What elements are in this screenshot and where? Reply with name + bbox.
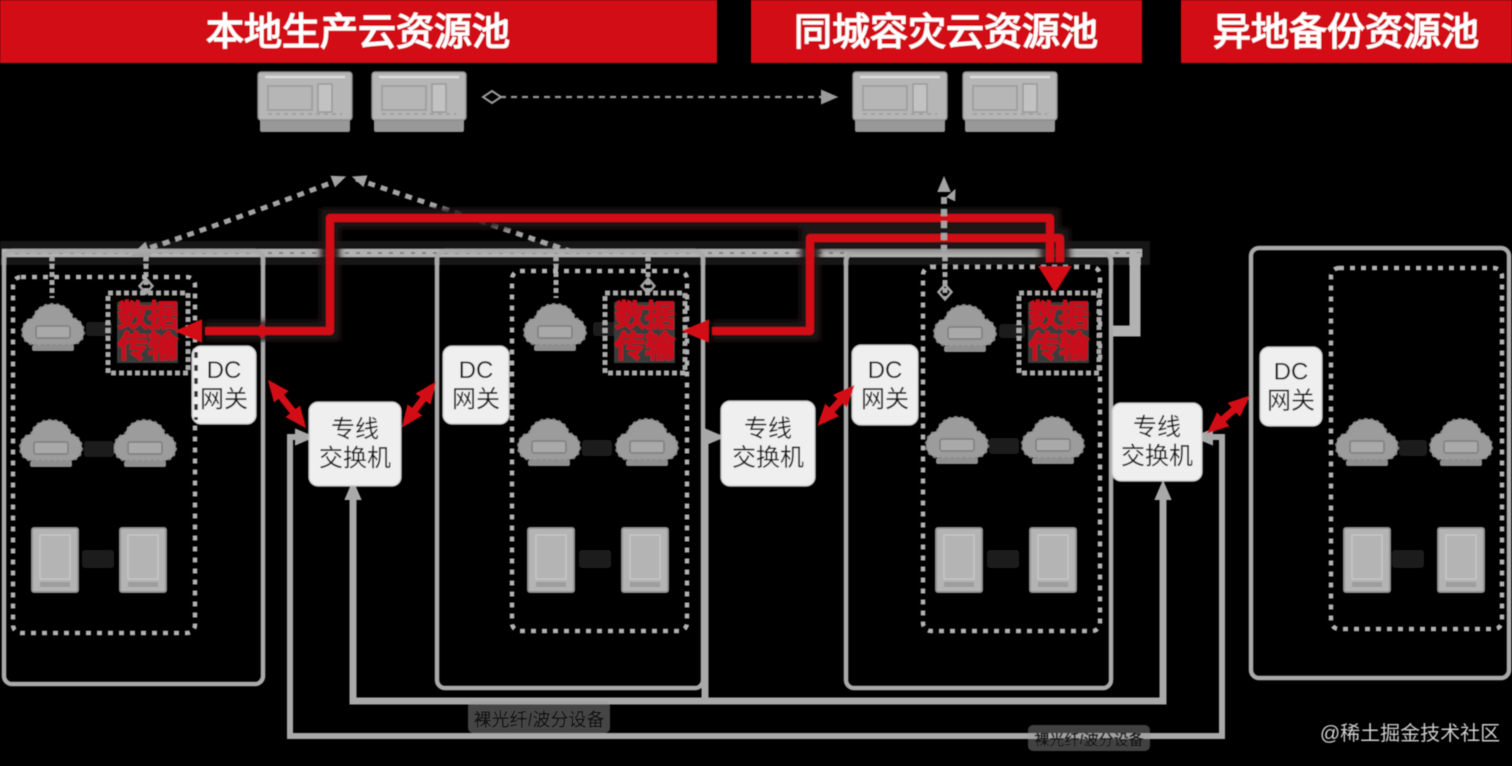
svg-text:DC: DC: [207, 357, 242, 384]
svg-text:网关: 网关: [452, 386, 500, 413]
svg-text:网关: 网关: [1267, 388, 1315, 415]
svg-text:DC: DC: [868, 357, 903, 384]
svg-text:交换机: 交换机: [1121, 443, 1193, 470]
svg-text:传输: 传输: [117, 331, 179, 364]
svg-text:裸光纤/波分设备: 裸光纤/波分设备: [1034, 731, 1144, 749]
svg-text:传输: 传输: [614, 331, 676, 364]
svg-text:数据: 数据: [1029, 300, 1089, 333]
svg-text:专线: 专线: [744, 416, 792, 443]
svg-text:网关: 网关: [200, 386, 248, 413]
svg-text:交换机: 交换机: [732, 445, 804, 472]
svg-text:@稀土掘金技术社区: @稀土掘金技术社区: [1320, 722, 1500, 745]
svg-text:裸光纤/波分设备: 裸光纤/波分设备: [473, 709, 605, 730]
svg-text:异地备份资源池: 异地备份资源池: [1213, 12, 1479, 54]
svg-text:传输: 传输: [1028, 331, 1090, 364]
svg-text:专线: 专线: [331, 416, 379, 443]
svg-text:网关: 网关: [861, 386, 909, 413]
svg-text:同城容灾云资源池: 同城容灾云资源池: [794, 12, 1098, 54]
svg-text:数据: 数据: [118, 300, 178, 333]
svg-text:本地生产云资源池: 本地生产云资源池: [206, 12, 510, 54]
svg-text:数据: 数据: [615, 300, 675, 333]
svg-text:专线: 专线: [1133, 414, 1181, 441]
svg-text:DC: DC: [1274, 359, 1309, 386]
svg-text:DC: DC: [459, 357, 494, 384]
svg-text:交换机: 交换机: [319, 445, 391, 472]
